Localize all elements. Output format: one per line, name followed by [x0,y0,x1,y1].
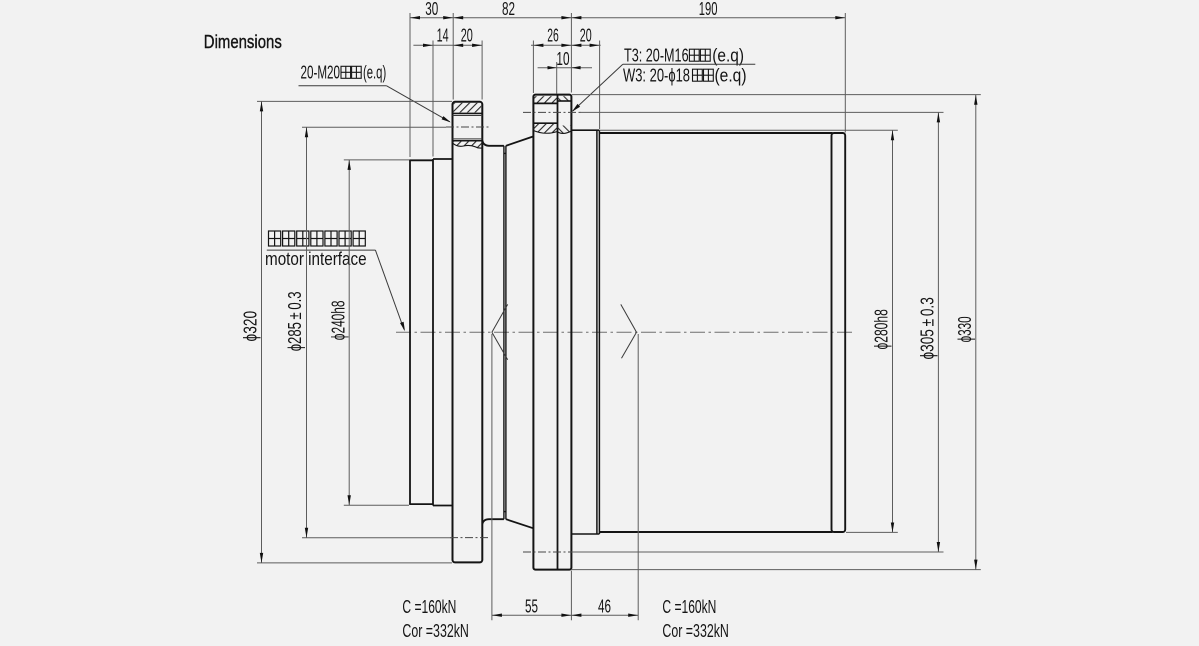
svg-text:20: 20 [580,26,592,46]
svg-text:20: 20 [461,26,473,46]
svg-text:(e.q): (e.q) [715,66,747,86]
svg-text:26: 26 [547,26,559,46]
svg-text:motor interface: motor interface [265,249,367,269]
svg-text:10: 10 [556,49,569,69]
svg-text:ϕ330: ϕ330 [955,316,975,342]
svg-text:82: 82 [502,0,515,19]
svg-text:190: 190 [699,0,718,19]
svg-text:ϕ305 ± 0.3: ϕ305 ± 0.3 [918,297,938,359]
svg-text:30: 30 [425,0,438,19]
svg-text:Cor =332kN: Cor =332kN [662,621,729,641]
svg-text:W3: 20-ϕ18: W3: 20-ϕ18 [623,66,690,86]
svg-text:T3: 20-M16: T3: 20-M16 [624,46,689,66]
svg-text:46: 46 [598,597,611,617]
svg-text:ϕ320: ϕ320 [241,311,261,342]
svg-text:C =160kN: C =160kN [402,597,456,617]
svg-text:ϕ285 ± 0.3: ϕ285 ± 0.3 [285,291,305,351]
svg-text:(e.q): (e.q) [712,46,744,66]
svg-text:C =160kN: C =160kN [662,597,716,617]
svg-text:ϕ240h8: ϕ240h8 [328,301,348,341]
svg-text:Dimensions: Dimensions [204,32,282,52]
svg-text:Cor =332kN: Cor =332kN [402,621,469,641]
svg-text:(e.q): (e.q) [363,63,386,83]
svg-text:55: 55 [525,597,538,617]
svg-text:ϕ280h8: ϕ280h8 [871,309,891,349]
svg-text:14: 14 [437,26,449,46]
svg-text:20-M20: 20-M20 [301,63,341,83]
